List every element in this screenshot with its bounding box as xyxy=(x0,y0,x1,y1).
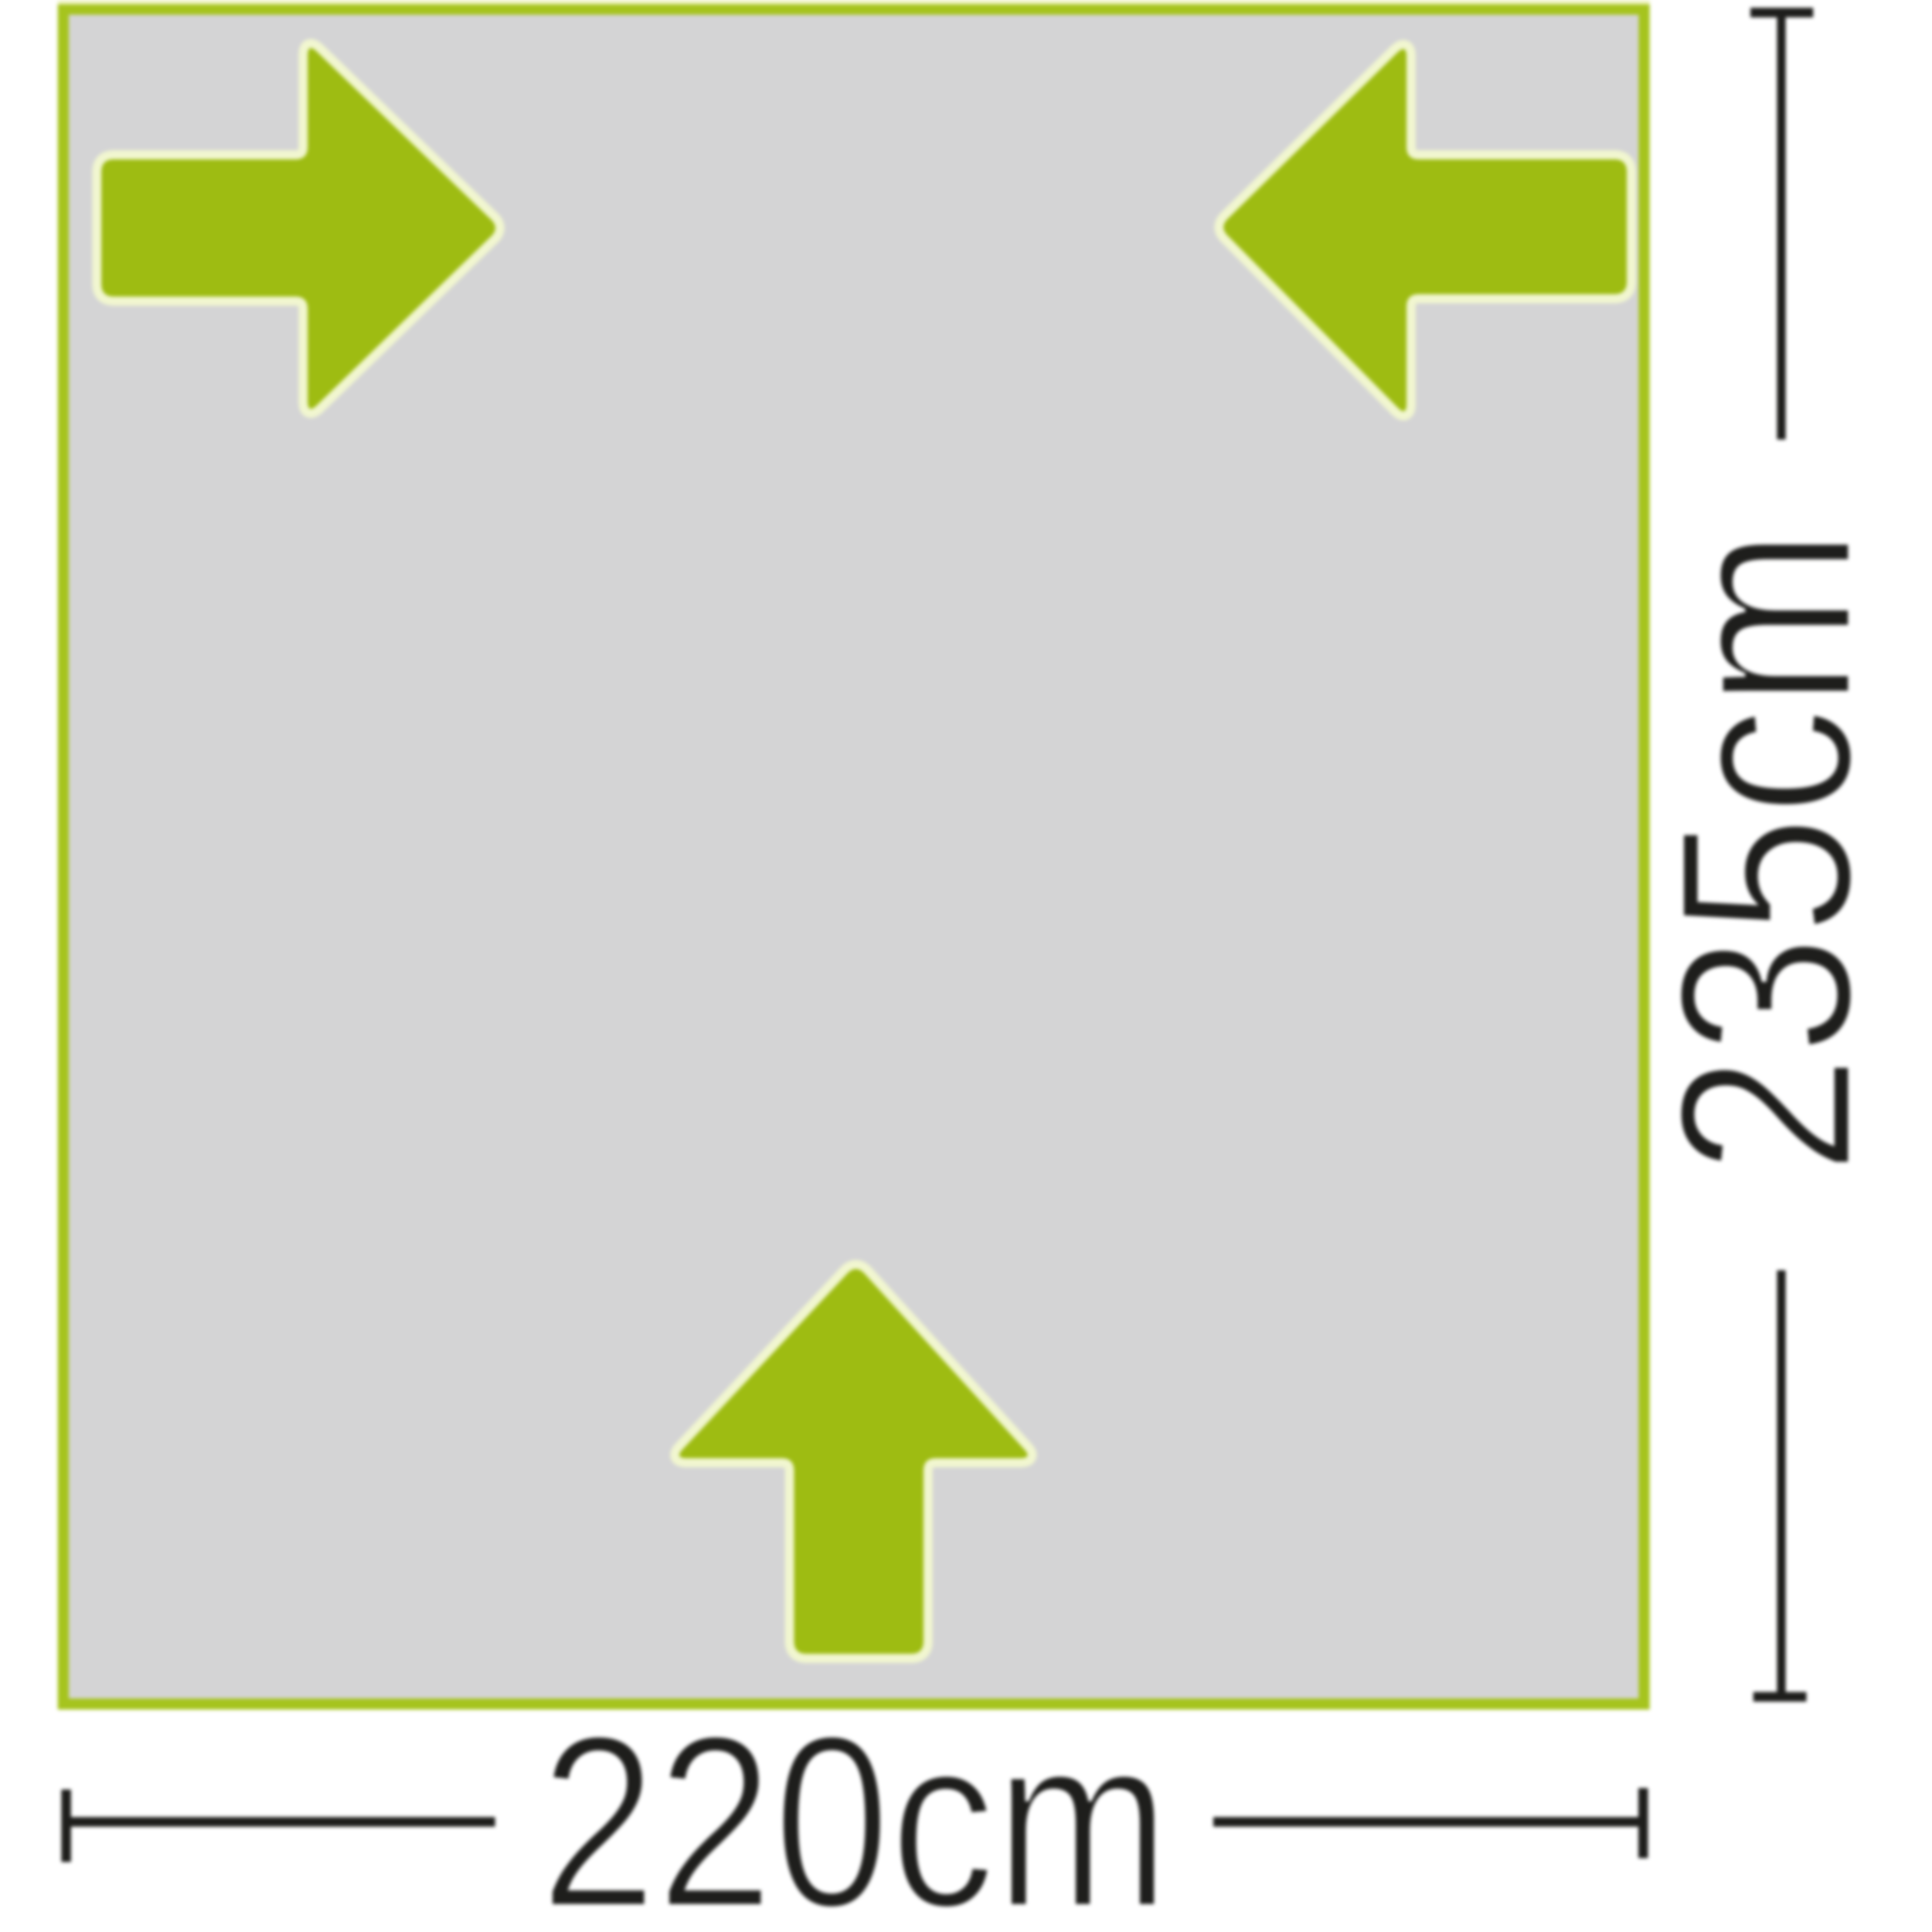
svg-text:235cm: 235cm xyxy=(1628,528,1903,1175)
svg-text:220cm: 220cm xyxy=(540,1684,1170,1932)
